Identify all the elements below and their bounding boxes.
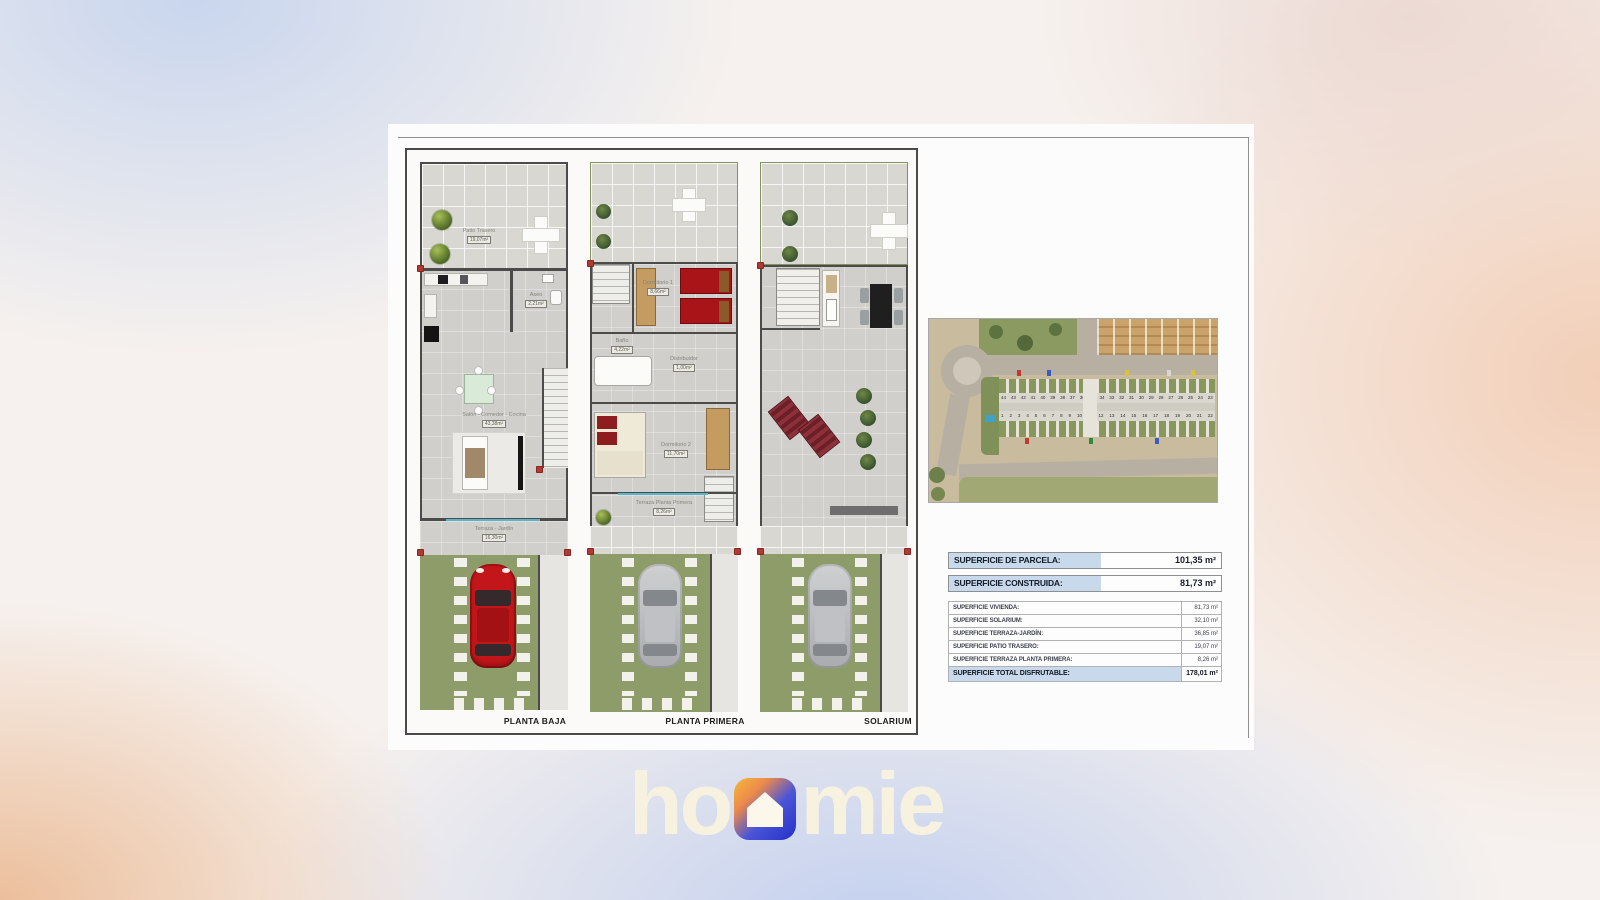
roundabout-center bbox=[953, 357, 981, 385]
table-row-value: 101,35 m² bbox=[1175, 553, 1216, 568]
paving-stripes bbox=[622, 558, 634, 696]
room-label-bano: Baño 4,22m² bbox=[596, 338, 648, 354]
plot-number: 16 bbox=[1142, 411, 1147, 421]
plant-icon bbox=[860, 410, 876, 426]
plot-number: 5 bbox=[1035, 411, 1038, 421]
paving-stripes bbox=[622, 698, 697, 710]
field bbox=[959, 477, 1218, 503]
room-area: 1,00m² bbox=[673, 364, 695, 372]
floorplan-solarium bbox=[758, 160, 910, 712]
paving-stripes bbox=[685, 558, 697, 696]
plot-number: 21 bbox=[1197, 411, 1202, 421]
sheet-right-border bbox=[1248, 137, 1249, 738]
plot-number: 4 bbox=[1026, 411, 1029, 421]
room-name: Dormitorio 1 bbox=[643, 280, 673, 286]
table-row-value: 8,26 m² bbox=[1181, 654, 1221, 666]
existing-buildings bbox=[1097, 319, 1218, 355]
pillow bbox=[597, 416, 617, 429]
table-row-solarium: SUPERFICIE SOLARIUM: 32,10 m² bbox=[948, 614, 1222, 628]
plot-number: 1 bbox=[1001, 411, 1004, 421]
plant-icon bbox=[782, 210, 798, 226]
plot-number: 44 bbox=[1001, 393, 1006, 403]
plot-number: 10 bbox=[1077, 411, 1082, 421]
plant-icon bbox=[430, 244, 450, 264]
terrace-floor bbox=[760, 526, 908, 554]
plan-title-solarium: SOLARIUM bbox=[842, 716, 934, 726]
stairs-icon bbox=[592, 264, 630, 304]
plot-number: 6 bbox=[1043, 411, 1046, 421]
house-icon bbox=[733, 777, 797, 841]
pool-icon bbox=[985, 415, 995, 422]
cooktop-icon bbox=[438, 275, 448, 284]
wall bbox=[590, 332, 738, 334]
bathtub-icon bbox=[594, 356, 652, 386]
logo-text-left: ho bbox=[629, 760, 731, 848]
paving-stripes bbox=[517, 558, 530, 696]
pillow bbox=[719, 301, 729, 322]
plot-number: 25 bbox=[1188, 393, 1193, 403]
wall bbox=[590, 402, 738, 404]
road bbox=[1077, 319, 1097, 357]
plot-number: 27 bbox=[1168, 393, 1173, 403]
survey-marker-icon bbox=[734, 548, 741, 555]
red-car-icon bbox=[470, 564, 516, 668]
plot-number: 13 bbox=[1109, 411, 1114, 421]
plot-number: 29 bbox=[1149, 393, 1154, 403]
bed-icon bbox=[594, 412, 646, 478]
paving-stripes bbox=[454, 558, 467, 696]
pillow bbox=[719, 271, 729, 292]
survey-marker-icon bbox=[417, 265, 424, 272]
terrace-table-icon bbox=[672, 188, 704, 220]
room-name: Terraza - Jardín bbox=[475, 526, 514, 532]
bar-table-icon bbox=[870, 284, 892, 328]
car-dot bbox=[1047, 370, 1051, 376]
plot-number: 34 bbox=[1099, 393, 1104, 403]
room-area: 43,38m² bbox=[482, 420, 506, 428]
wall bbox=[760, 328, 820, 330]
windshield bbox=[475, 590, 511, 606]
plot-number: 14 bbox=[1120, 411, 1125, 421]
wardrobe-icon bbox=[636, 268, 656, 326]
plot-number: 7 bbox=[1052, 411, 1055, 421]
survey-marker-icon bbox=[536, 466, 543, 473]
wall bbox=[590, 262, 592, 555]
logo-text-right: mie bbox=[800, 760, 943, 848]
wall bbox=[420, 268, 568, 271]
room-label-dormitorio2: Dormitorio 2 11,70m² bbox=[650, 442, 702, 458]
chair-icon bbox=[487, 386, 496, 395]
wall bbox=[760, 265, 762, 555]
plot-number: 20 bbox=[1186, 411, 1191, 421]
tree-icon bbox=[989, 325, 1003, 339]
plan-title-planta-primera: PLANTA PRIMERA bbox=[650, 716, 760, 726]
wardrobe-icon bbox=[706, 408, 730, 470]
stairs-icon bbox=[542, 368, 568, 468]
side-path bbox=[880, 554, 908, 712]
floorplan-planta-primera: Dormitorio 1 8,66m² Baño 4,22m² Distribu… bbox=[588, 160, 740, 712]
plot-number: 39 bbox=[1050, 393, 1055, 403]
car-dot bbox=[1089, 438, 1093, 444]
room-area: 4,22m² bbox=[611, 346, 633, 354]
plot-number: 22 bbox=[1208, 411, 1213, 421]
wall bbox=[420, 268, 422, 555]
sofa-cushion bbox=[465, 448, 485, 478]
plot-number: 23 bbox=[1208, 393, 1213, 403]
table-row-label: SUPERFICIE PATIO TRASERO: bbox=[949, 641, 1181, 653]
stairs-icon bbox=[776, 268, 820, 326]
table-row-terraza-jardin: SUPERFICIE TERRAZA-JARDÍN: 36,85 m² bbox=[948, 627, 1222, 641]
car-dot bbox=[1167, 370, 1171, 376]
tv-icon bbox=[518, 436, 523, 490]
floorplan-planta-baja: Patio Trasero 19,07m² Aseo 2,21m² Salón … bbox=[418, 160, 570, 712]
plot-number: 9 bbox=[1069, 411, 1072, 421]
survey-marker-icon bbox=[564, 549, 571, 556]
aerial-site-plan: 4443424140393837363534333231302928272625… bbox=[928, 318, 1218, 503]
table-row-patio-trasero: SUPERFICIE PATIO TRASERO: 19,07 m² bbox=[948, 640, 1222, 654]
chair-icon bbox=[860, 310, 869, 325]
room-name: Baño bbox=[616, 338, 629, 344]
plot-number: 33 bbox=[1109, 393, 1114, 403]
room-label-aseo: Aseo 2,21m² bbox=[514, 292, 558, 308]
paving-stripes bbox=[792, 698, 867, 710]
plot-number: 12 bbox=[1098, 411, 1103, 421]
chair-icon bbox=[455, 386, 464, 395]
table-row-label: SUPERFICIE DE PARCELA: bbox=[949, 553, 1101, 568]
wall bbox=[632, 264, 634, 332]
room-name: Dormitorio 2 bbox=[661, 442, 691, 448]
room-area: 11,70m² bbox=[664, 450, 688, 458]
table-row-value: 178,01 m² bbox=[1181, 667, 1221, 681]
table-row-value: 36,85 m² bbox=[1181, 628, 1221, 640]
table-row-label: SUPERFICIE CONSTRUIDA: bbox=[949, 576, 1101, 591]
plant-icon bbox=[596, 204, 611, 219]
windshield bbox=[643, 590, 677, 606]
room-area: 16,30m² bbox=[482, 534, 506, 542]
bed-icon bbox=[680, 268, 732, 294]
chair-icon bbox=[894, 288, 903, 303]
tree-icon bbox=[931, 487, 945, 501]
bed-icon bbox=[680, 298, 732, 324]
room-name: Distribuidor bbox=[670, 356, 698, 362]
room-area: 8,66m² bbox=[647, 288, 669, 296]
plot-number-row-bottom: 12345678910111213141516171819202122 bbox=[999, 411, 1215, 421]
chair-icon bbox=[860, 288, 869, 303]
sheet-top-border bbox=[398, 137, 1248, 138]
paving-stripes bbox=[454, 698, 530, 710]
kitchen-counter bbox=[424, 273, 488, 286]
survey-marker-icon bbox=[587, 548, 594, 555]
plot-number: 3 bbox=[1018, 411, 1021, 421]
kitchen-cabinet bbox=[424, 294, 437, 318]
windshield bbox=[813, 590, 847, 606]
car-roof bbox=[645, 608, 675, 642]
plant-icon bbox=[432, 210, 452, 230]
car-roof bbox=[815, 608, 845, 642]
room-label-dormitorio1: Dormitorio 1 8,66m² bbox=[636, 280, 680, 296]
plot-number: 26 bbox=[1178, 393, 1183, 403]
table-row-vivienda: SUPERFICIE VIVIENDA: 81,73 m² bbox=[948, 601, 1222, 615]
plot-number: 18 bbox=[1164, 411, 1169, 421]
plot-number: 41 bbox=[1031, 393, 1036, 403]
patio-table-icon bbox=[522, 216, 558, 252]
garden-row bbox=[999, 421, 1215, 437]
paving-stripes bbox=[855, 558, 867, 696]
fridge-icon bbox=[424, 326, 439, 342]
wall bbox=[906, 265, 908, 555]
survey-marker-icon bbox=[904, 548, 911, 555]
car-dot bbox=[1017, 370, 1021, 376]
room-name: Salón - Comedor - Cocina bbox=[462, 412, 526, 418]
room-label-terraza-p1: Terraza Planta Primera 8,26m² bbox=[618, 500, 710, 516]
plot-number: 38 bbox=[1060, 393, 1065, 403]
blanket bbox=[597, 451, 643, 475]
plot-number: 37 bbox=[1070, 393, 1075, 403]
plan-title-planta-baja: PLANTA BAJA bbox=[480, 716, 590, 726]
wall bbox=[510, 268, 513, 332]
alley bbox=[1083, 379, 1097, 437]
plot-number: 42 bbox=[1021, 393, 1026, 403]
hoomie-logo: ho mie bbox=[596, 754, 976, 854]
table-row-construida: SUPERFICIE CONSTRUIDA: 81,73 m² bbox=[948, 575, 1222, 592]
wall bbox=[760, 265, 908, 267]
car-roof bbox=[477, 608, 509, 642]
table-row-label: SUPERFICIE SOLARIUM: bbox=[949, 615, 1181, 627]
paving-stripes bbox=[792, 558, 804, 696]
chair-icon bbox=[474, 366, 483, 375]
plot-number: 24 bbox=[1198, 393, 1203, 403]
plot-number: 15 bbox=[1131, 411, 1136, 421]
kitchenette bbox=[822, 270, 840, 327]
plot-number: 30 bbox=[1139, 393, 1144, 403]
solar-panel-icon bbox=[830, 506, 898, 515]
sink-icon bbox=[460, 275, 468, 284]
row-divider bbox=[999, 403, 1215, 411]
car-dot bbox=[1191, 370, 1195, 376]
table-row-label: SUPERFICIE TERRAZA PLANTA PRIMERA: bbox=[949, 654, 1181, 666]
plot-number: 32 bbox=[1119, 393, 1124, 403]
room-label-salon: Salón - Comedor - Cocina 43,38m² bbox=[442, 412, 546, 428]
car-dot bbox=[1125, 370, 1129, 376]
sink-icon bbox=[826, 299, 837, 321]
terrace-table-icon bbox=[870, 212, 906, 248]
plot-number: 40 bbox=[1040, 393, 1045, 403]
pillow bbox=[597, 432, 617, 445]
room-label-patio: Patio Trasero 19,07m² bbox=[446, 228, 512, 244]
plant-icon bbox=[596, 510, 611, 525]
table-row-label: SUPERFICIE TERRAZA-JARDÍN: bbox=[949, 628, 1181, 640]
car-dot bbox=[1155, 438, 1159, 444]
table-row-terraza-p1: SUPERFICIE TERRAZA PLANTA PRIMERA: 8,26 … bbox=[948, 653, 1222, 667]
survey-marker-icon bbox=[757, 262, 764, 269]
gray-car-icon bbox=[808, 564, 852, 668]
side-path bbox=[710, 554, 738, 712]
room-label-distribuidor: Distribuidor 1,00m² bbox=[654, 356, 714, 372]
plot-number: 31 bbox=[1129, 393, 1134, 403]
plant-icon bbox=[596, 234, 611, 249]
room-label-terraza: Terraza - Jardín 16,30m² bbox=[446, 526, 542, 542]
table-row-total-disfrutable: SUPERFICIE TOTAL DISFRUTABLE: 178,01 m² bbox=[948, 666, 1222, 682]
tree-icon bbox=[929, 467, 945, 483]
survey-marker-icon bbox=[757, 548, 764, 555]
room-area: 19,07m² bbox=[467, 236, 491, 244]
car-dot bbox=[1025, 438, 1029, 444]
plot-number-row-top: 4443424140393837363534333231302928272625… bbox=[999, 393, 1215, 403]
survey-marker-icon bbox=[417, 549, 424, 556]
chair-icon bbox=[894, 310, 903, 325]
headlight bbox=[476, 568, 484, 573]
plot-number: 28 bbox=[1159, 393, 1164, 403]
brochure-page: Patio Trasero 19,07m² Aseo 2,21m² Salón … bbox=[0, 0, 1600, 900]
room-name: Aseo bbox=[530, 292, 543, 298]
room-name: Patio Trasero bbox=[463, 228, 496, 234]
table-row-value: 32,10 m² bbox=[1181, 615, 1221, 627]
terrace-floor bbox=[590, 162, 738, 263]
gray-car-icon bbox=[638, 564, 682, 668]
terrace-floor bbox=[590, 526, 738, 554]
rear-window bbox=[475, 644, 511, 656]
plot-number: 8 bbox=[1060, 411, 1063, 421]
tree-icon bbox=[1049, 323, 1062, 336]
survey-marker-icon bbox=[587, 260, 594, 267]
glass-door bbox=[618, 493, 708, 495]
table-row-parcela: SUPERFICIE DE PARCELA: 101,35 m² bbox=[948, 552, 1222, 569]
plant-icon bbox=[856, 432, 872, 448]
wall bbox=[736, 262, 738, 555]
tree-icon bbox=[1017, 335, 1033, 351]
table-row-value: 81,73 m² bbox=[1181, 602, 1221, 614]
table-row-value: 19,07 m² bbox=[1181, 641, 1221, 653]
table-row-label: SUPERFICIE TOTAL DISFRUTABLE: bbox=[949, 667, 1181, 681]
plot-number: 17 bbox=[1153, 411, 1158, 421]
plot-number: 19 bbox=[1175, 411, 1180, 421]
room-name: Terraza Planta Primera bbox=[636, 500, 692, 506]
plant-icon bbox=[860, 454, 876, 470]
room-area: 8,26m² bbox=[653, 508, 675, 516]
rear-window bbox=[643, 644, 677, 656]
plot-number: 43 bbox=[1011, 393, 1016, 403]
plot-number: 2 bbox=[1009, 411, 1012, 421]
plant-icon bbox=[782, 246, 798, 262]
plant-icon bbox=[856, 388, 872, 404]
cabinet bbox=[826, 275, 837, 293]
table-row-label: SUPERFICIE VIVIENDA: bbox=[949, 602, 1181, 614]
side-path bbox=[538, 555, 568, 710]
headlight bbox=[502, 568, 510, 573]
garden-row bbox=[999, 379, 1215, 393]
table-row-value: 81,73 m² bbox=[1180, 576, 1216, 591]
washbasin-icon bbox=[542, 274, 554, 283]
rear-window bbox=[813, 644, 847, 656]
room-area: 2,21m² bbox=[525, 300, 547, 308]
